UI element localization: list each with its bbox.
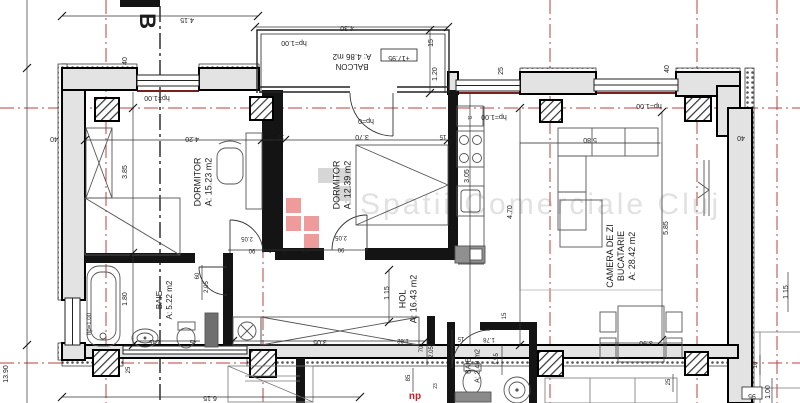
dimension-label: 23 [433,383,439,389]
dimension-label: 60 [195,272,201,279]
window-head-label: hp=1.00 [636,102,662,109]
dimension-label: 45 [189,338,196,344]
dimension-label: 1.15 [384,286,391,300]
dimension-label: 3.05 [464,169,471,183]
dimension-label: 4.20 [185,135,199,142]
dimension-label: 25 [126,366,132,373]
dimension-label: 3.90 [639,339,653,346]
stove-icon [457,131,484,167]
dimension-label: 40 [737,134,745,141]
dimension-label: 15 [439,133,446,139]
dimension-label: 6.15 [203,394,217,401]
dimension-label: 1.00 [765,385,772,399]
watermark-text: Spatii Comerciale Cluj [360,188,721,221]
red-note-label: np [409,391,421,402]
round-sink-icon [504,377,530,403]
dimension-label: 5 [268,247,271,253]
window [65,298,80,345]
room-label-hol: HOLA: 16.43 m2 [398,275,419,324]
dimension-label: 15 [277,133,284,139]
dimension-label: 5.80 [583,136,597,143]
window [123,346,247,354]
dimension-label: 3.70 [355,133,369,140]
shaft-duct [205,313,218,347]
dimension-label: 40 [664,65,671,73]
dimension-label: 2.05 [335,234,347,240]
window-head-label: hp=0 [358,117,374,124]
dimension-label: 90 [248,247,255,253]
dimension-label: 2.45 [149,338,161,344]
dimension-label: 85 [406,374,412,381]
dimension-label: 70 [419,345,425,352]
window-head-label: hp=1.00 [144,94,170,101]
dimension-label: 1.55 [494,353,500,365]
elevation-marker-label: 95 [748,392,756,399]
window-head-label: hp=1.00 [481,113,507,120]
floor-plan-drawing: Spatii Comerciale Cluj [0,0,800,403]
dimension-label: 3.05 [313,338,327,345]
dimension-label: 13.90 [3,365,10,383]
dimension-label: 4.70 [507,205,514,219]
dimension-label: 2.05 [429,346,435,358]
desk-chair [217,133,262,209]
floor-plan-svg: Spatii Comerciale Cluj [0,0,800,403]
dimension-label: 2.05 [204,281,210,293]
dimension-label: 40 [122,57,129,65]
dimension-label: 2.05 [241,235,253,241]
section-marker-label: B [135,13,160,29]
dimension-label: 25 [666,378,672,385]
window [594,79,678,91]
dimension-label: 1.80 [122,292,129,306]
window [456,80,520,91]
dimension-label: 1.20 [432,67,439,81]
dimension-label: 90 [337,246,344,252]
dimension-label: 5.85 [663,221,670,235]
wardrobe [86,128,112,198]
dimension-label: 91 [301,247,308,253]
room-label-baie-1: BAIEA: 5.22 m2 [155,280,174,319]
dimension-label: 15 [457,335,464,341]
dimension-label: 40 [50,135,58,142]
dimension-label: 1.15 [783,285,790,299]
level-marker-label: +17.95 [388,54,410,61]
dimension-label: 4.30 [340,24,354,31]
window-head-label: hp=1.00 [87,312,93,335]
room-label-balcon: BALCONA: 4.86 m2 [332,52,371,71]
dimension-label: 10 [753,361,759,368]
dimension-label: 25 [498,67,505,75]
window-head-label: hp=1.00 [281,39,307,46]
dimension-label: 15 [502,312,508,319]
dimension-label: 3.85 [122,165,129,179]
balcony-door [350,93,393,136]
dimension-label: 15 [428,39,435,47]
shaft-duct [455,392,491,402]
room-label-camera-de-zi: CAMERA DE ZIBUCATARIEA: 28.42 m2 [605,224,637,288]
boiler-label: ct [467,114,472,120]
window [137,75,199,86]
dimension-label: 4.15 [180,16,194,23]
dimension-label: 1.62 [397,337,409,343]
bed [85,198,180,255]
room-label-dormitor-1: DORMITORA: 15.23 m2 [193,157,214,206]
dimension-label: 15 [281,247,288,253]
room-label-dormitor-2: DORMITORA: 12.39 m2 [332,160,353,209]
dimension-label: 1.78 [483,336,495,342]
